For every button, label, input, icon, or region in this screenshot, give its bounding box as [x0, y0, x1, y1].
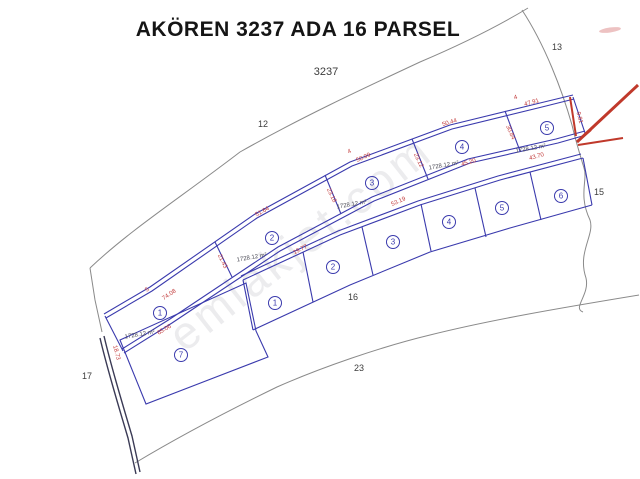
lower-strip-divider-4 [475, 188, 486, 237]
measurement: 43.70 [529, 152, 546, 162]
red-annotation [570, 26, 638, 145]
area-label-1: 1728.12 m² [124, 329, 155, 340]
lot-number-text: 3 [370, 179, 375, 188]
lot-number-text: 2 [331, 263, 336, 272]
lot-number-text: 4 [447, 218, 452, 227]
lower-strip-divider-2 [362, 227, 373, 275]
lower-strip-divider-5 [530, 172, 541, 220]
measurement: 45.20 [461, 158, 478, 168]
lot-number-text: 5 [545, 124, 550, 133]
lot-number-lower-5: 5 [496, 202, 509, 215]
lot-number-text: 1 [158, 309, 163, 318]
lot-number-lower-1: 1 [269, 297, 282, 310]
measurement: 50.44 [442, 118, 459, 128]
measurement: 4 [513, 95, 518, 102]
lower-strip-divider-3 [421, 204, 431, 251]
boundary-road-left-outer [104, 336, 140, 472]
lot-number-text: 7 [179, 351, 184, 360]
page-title: AKÖREN 3237 ADA 16 PARSEL [136, 18, 460, 41]
arrow-underline [578, 138, 623, 145]
measurement: 51.64 [254, 206, 271, 219]
lot-number-lower-3: 3 [387, 236, 400, 249]
lot-number-upper-5: 5 [541, 122, 554, 135]
measurement: 74.08 [162, 288, 178, 302]
boundary-left [90, 268, 102, 332]
red-smudge [599, 26, 621, 34]
lot-number-text: 3 [391, 238, 396, 247]
measurement: 30.84 [504, 125, 516, 142]
measurement: 4 [347, 148, 353, 155]
cadastral-map-image: emlakjet.com AKÖREN 3237 ADA 16 PARSEL [0, 0, 640, 479]
label-block-3237: 3237 [314, 66, 338, 78]
label-parcel-16: 16 [348, 292, 358, 302]
neighbor-boundaries [90, 8, 639, 474]
measurement: 9.81 [575, 111, 584, 124]
lot-number-upper-1: 1 [154, 307, 167, 320]
lot-number-text: 2 [270, 234, 275, 243]
parcel-plan-svg: emlakjet.com AKÖREN 3237 ADA 16 PARSEL [0, 0, 640, 479]
lot-number-lower-2: 2 [327, 261, 340, 274]
label-parcel-12: 12 [258, 119, 268, 129]
measurement: 21.43 [216, 253, 228, 270]
measurement: 18.73 [111, 345, 121, 362]
lot-number-text: 1 [273, 299, 278, 308]
label-parcel-17: 17 [82, 371, 92, 381]
lot-number-lower-6: 6 [555, 190, 568, 203]
lot-number-text: 4 [460, 143, 465, 152]
lot-number-lower-4: 4 [443, 216, 456, 229]
label-parcel-23: 23 [354, 363, 364, 373]
lot-number-text: 5 [500, 204, 505, 213]
lot-number-text: 6 [559, 192, 564, 201]
label-parcel-15: 15 [594, 187, 604, 197]
lot-number-upper-4: 4 [456, 141, 469, 154]
measurement: 47.91 [524, 98, 541, 108]
label-parcel-13: 13 [552, 42, 562, 52]
